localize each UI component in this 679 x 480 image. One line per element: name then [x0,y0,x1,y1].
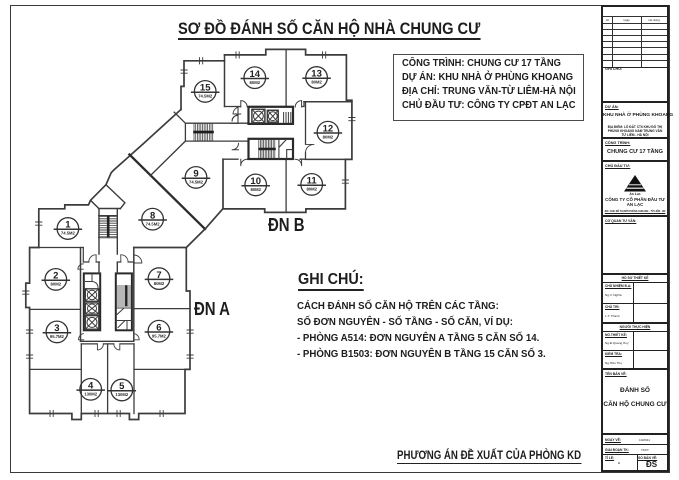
svg-text:7: 7 [156,270,161,281]
svg-text:5: 5 [119,381,125,392]
svg-text:15: 15 [200,83,211,94]
svg-text:13: 13 [311,69,322,80]
svg-text:80M2: 80M2 [154,281,165,286]
svg-text:74.5M2: 74.5M2 [198,94,213,99]
svg-text:74.5M2: 74.5M2 [189,180,204,185]
svg-text:An Lạc: An Lạc [629,192,640,195]
svg-text:6: 6 [156,322,161,333]
svg-text:8: 8 [150,210,155,221]
svg-text:4: 4 [88,381,94,392]
svg-text:80M2: 80M2 [323,134,334,139]
svg-text:12: 12 [323,123,334,134]
svg-text:9: 9 [193,169,198,180]
svg-text:11: 11 [307,176,318,187]
svg-text:74.5M2: 74.5M2 [61,231,76,236]
svg-text:10: 10 [250,176,261,187]
svg-text:1: 1 [65,220,71,231]
svg-text:74.5M2: 74.5M2 [146,221,161,226]
svg-text:80M2: 80M2 [311,80,322,85]
svg-text:2: 2 [53,271,58,282]
svg-text:95.7M2: 95.7M2 [50,334,65,339]
svg-text:80M2: 80M2 [51,282,62,287]
svg-text:14: 14 [250,69,261,80]
svg-text:80M2: 80M2 [250,80,261,85]
svg-text:80M2: 80M2 [250,187,261,192]
svg-text:3: 3 [54,323,59,334]
svg-text:95.7M2: 95.7M2 [152,333,167,338]
svg-text:130M2: 130M2 [115,392,128,397]
svg-text:130M2: 130M2 [84,392,97,397]
svg-text:80M2: 80M2 [306,187,317,192]
